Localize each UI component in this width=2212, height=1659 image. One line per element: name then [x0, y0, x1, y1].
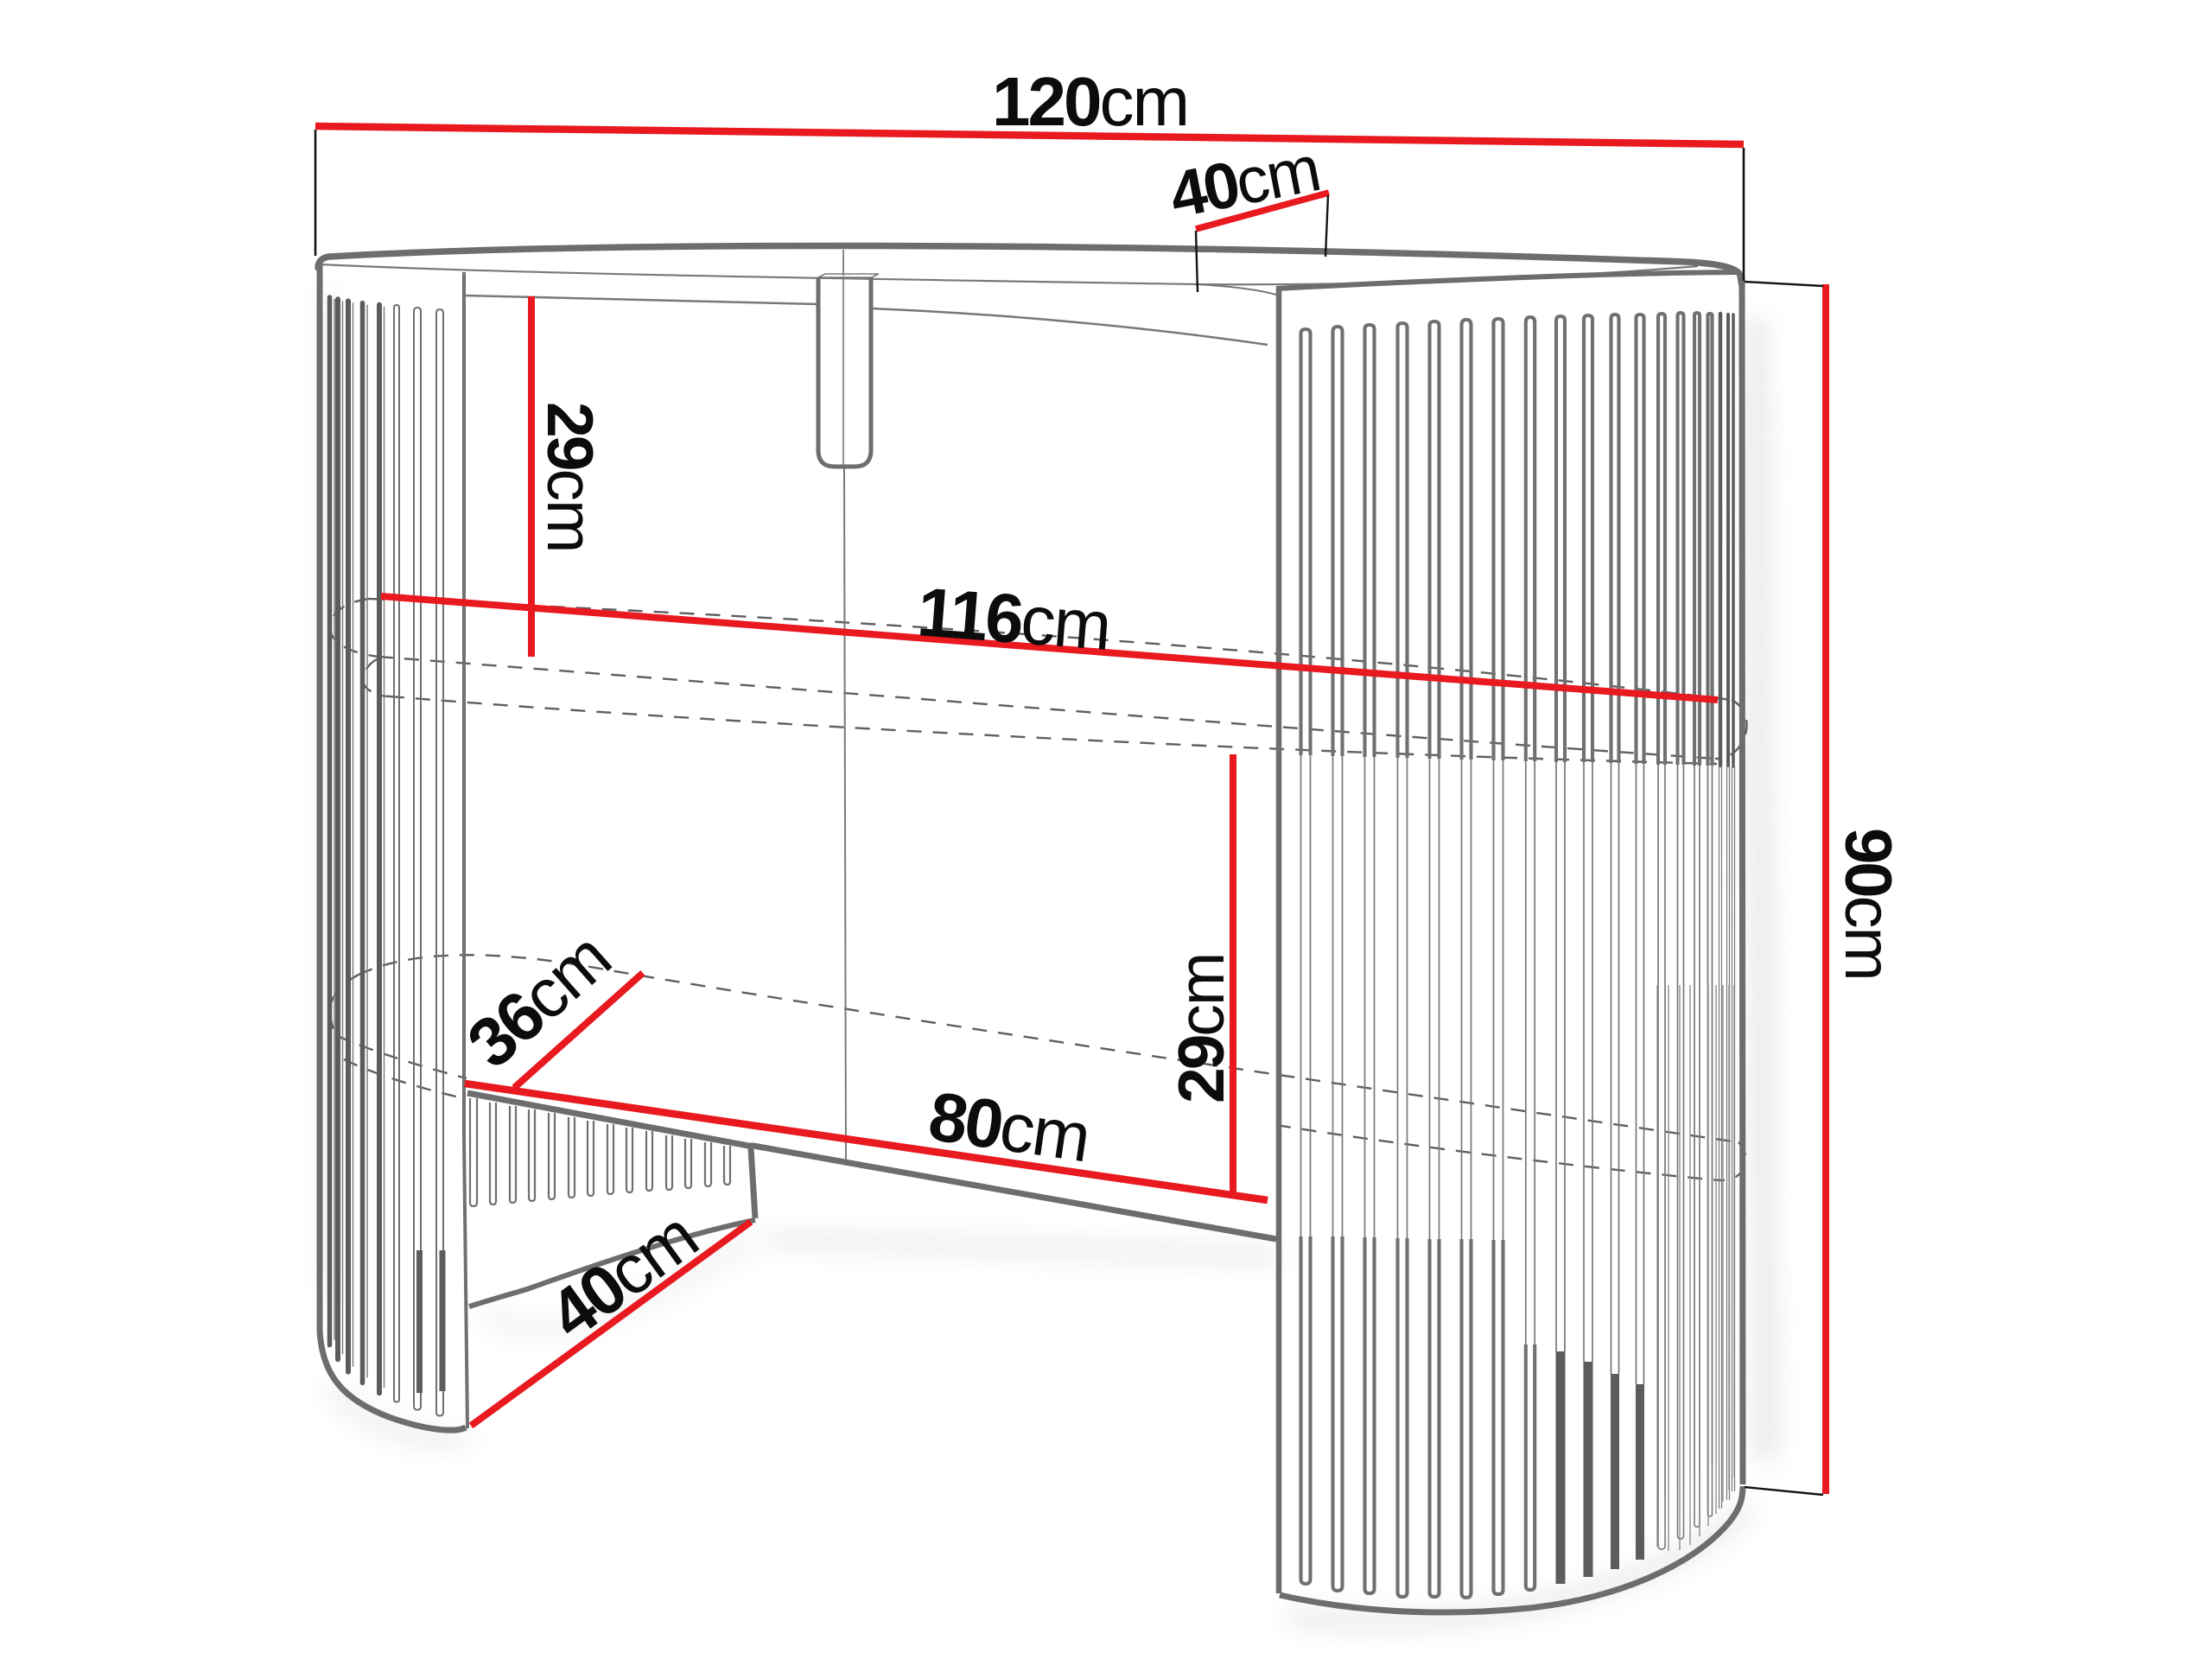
svg-text:29cm: 29cm [1165, 954, 1237, 1103]
svg-text:90cm: 90cm [1831, 828, 1904, 980]
svg-text:29cm: 29cm [534, 402, 607, 551]
svg-text:120cm: 120cm [992, 63, 1188, 140]
svg-text:116cm: 116cm [915, 573, 1113, 664]
